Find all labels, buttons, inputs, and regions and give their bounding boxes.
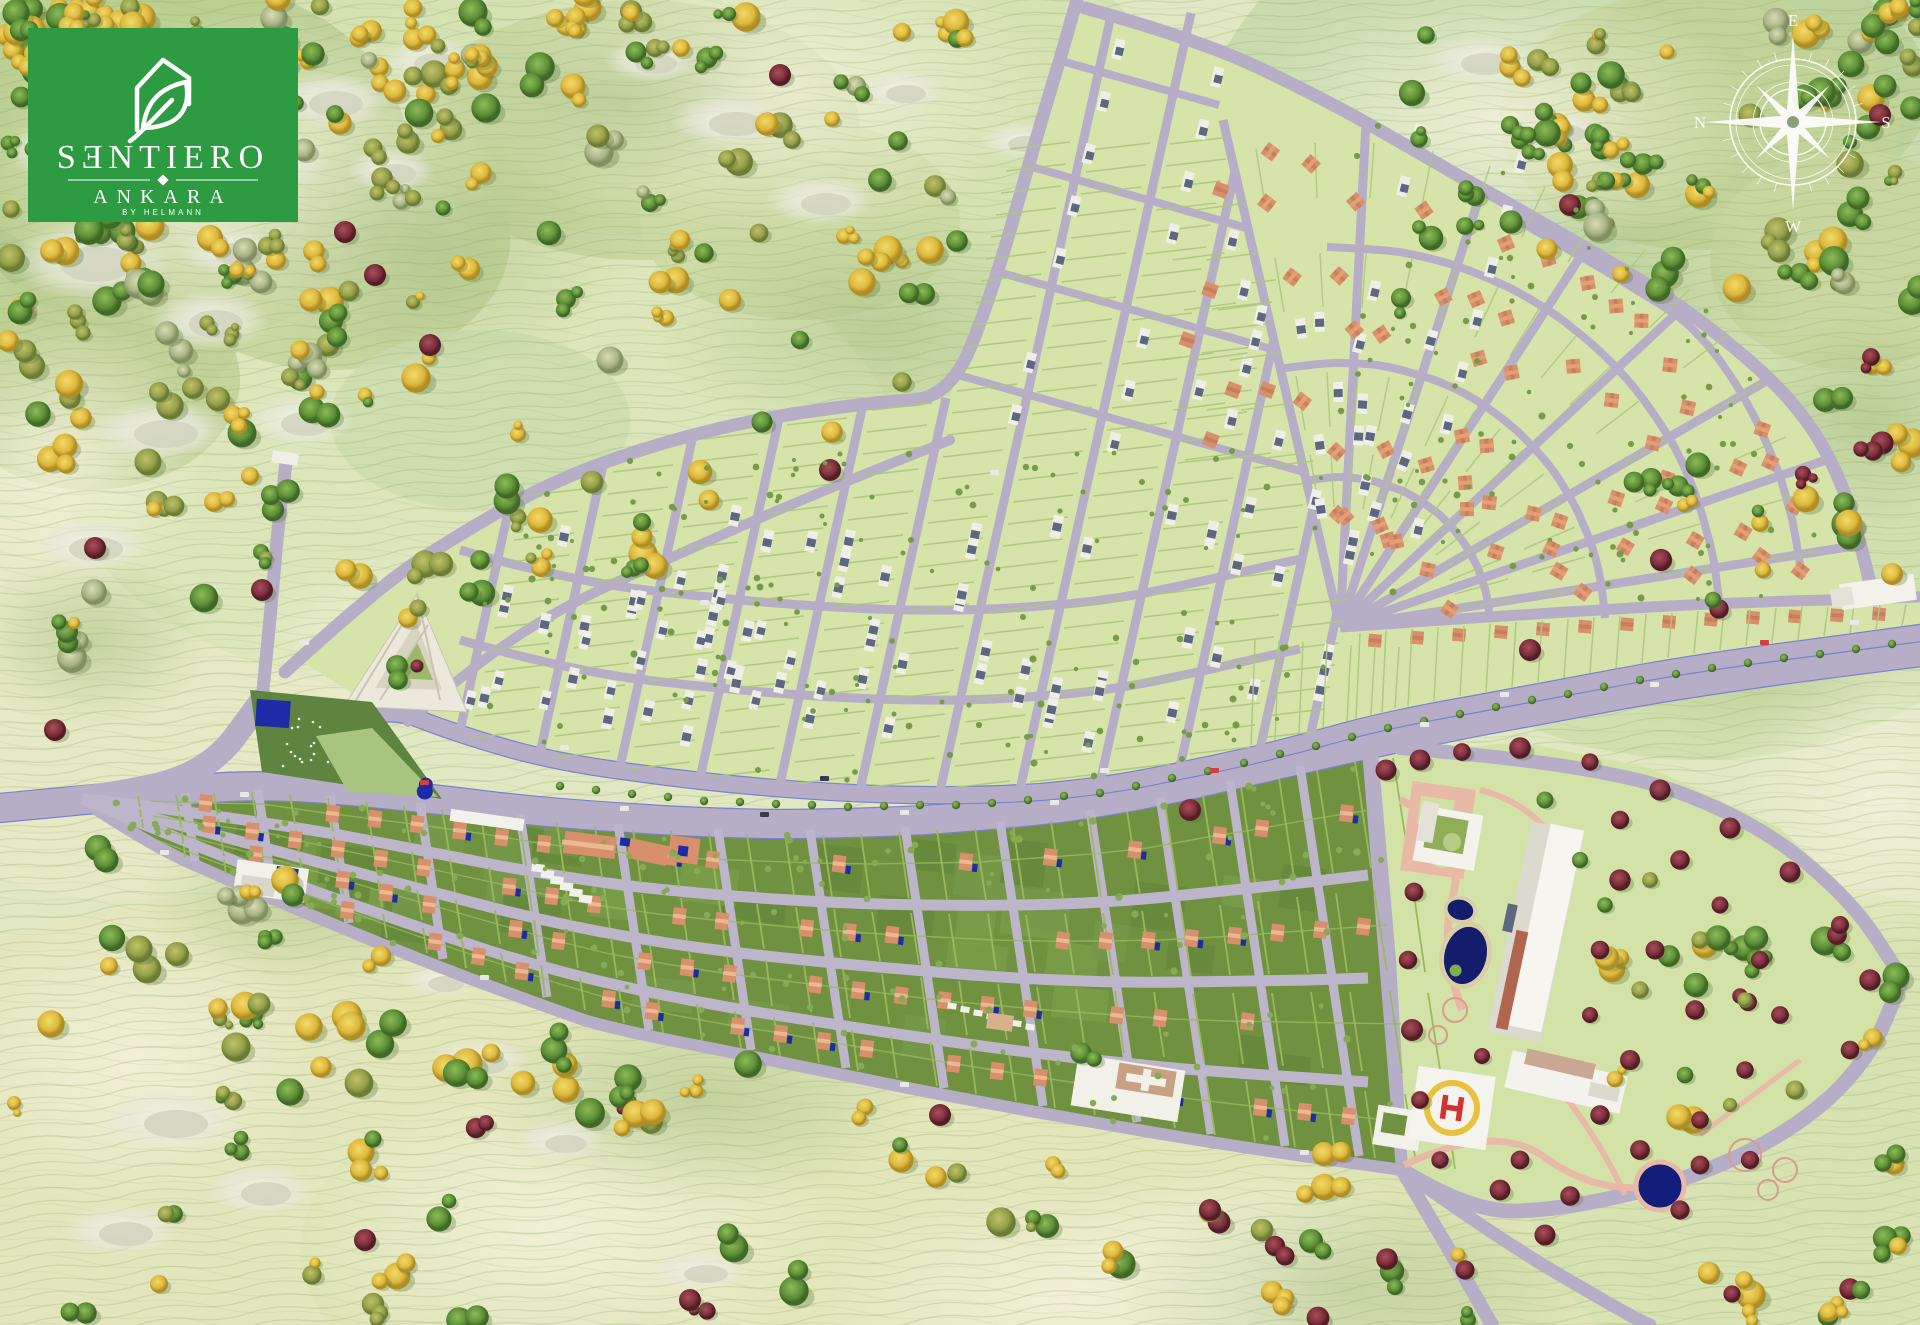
svg-text:W: W [1785, 217, 1802, 236]
svg-text:S: S [1881, 113, 1890, 132]
svg-text:N: N [1694, 113, 1706, 132]
svg-text:E: E [1788, 11, 1798, 30]
svg-text:BY HELMANN: BY HELMANN [122, 208, 204, 217]
svg-text:ANKARA: ANKARA [93, 186, 233, 208]
svg-text:SƎNTIERO: SƎNTIERO [57, 139, 269, 176]
